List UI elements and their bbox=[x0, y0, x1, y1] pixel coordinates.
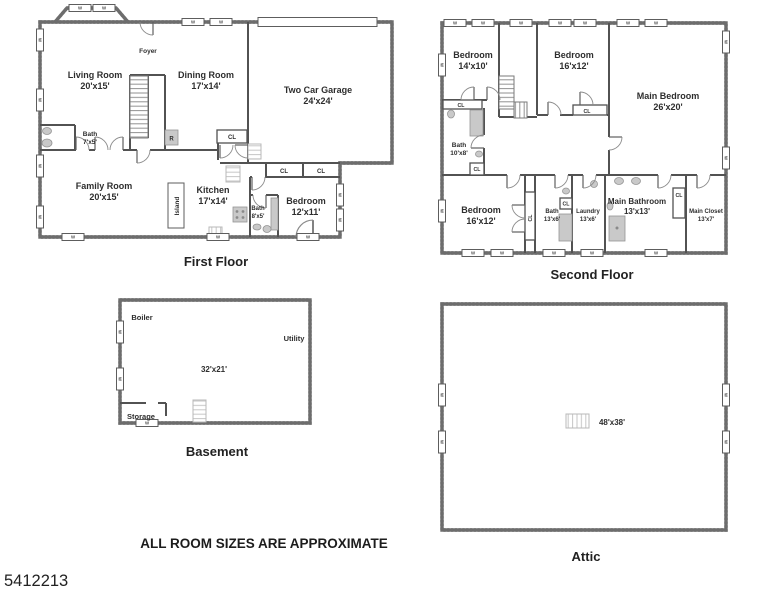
window-icon bbox=[645, 20, 667, 27]
room-dims-main-closet: 13'x7' bbox=[698, 217, 715, 223]
basement-title: Basement bbox=[186, 444, 249, 459]
window-icon bbox=[37, 155, 44, 177]
door-icon bbox=[555, 175, 568, 188]
tub-icon bbox=[559, 214, 572, 241]
door-icon bbox=[580, 92, 593, 105]
toilet-icon bbox=[448, 110, 455, 118]
room-label-bedroom1: Bedroom bbox=[453, 50, 493, 60]
stairs-icon bbox=[566, 414, 589, 428]
tub-icon bbox=[470, 110, 483, 136]
window-icon bbox=[69, 5, 91, 12]
room-dims-garage: 24'x24' bbox=[303, 96, 332, 106]
basement-plan: Boiler Utility 32'x21' Storage Basement bbox=[117, 300, 311, 459]
window-icon bbox=[439, 54, 446, 76]
window-icon bbox=[337, 184, 344, 206]
attic-title: Attic bbox=[572, 549, 601, 564]
window-icon bbox=[444, 20, 466, 27]
window-icon bbox=[723, 431, 730, 453]
window-icon bbox=[207, 234, 229, 241]
door-icon bbox=[609, 137, 622, 150]
room-dims-bath1: 10'x8' bbox=[450, 150, 468, 157]
window-icon bbox=[37, 206, 44, 228]
closet-label: CL bbox=[317, 169, 325, 175]
door-icon bbox=[658, 175, 671, 188]
toilet-icon bbox=[263, 226, 271, 233]
stairs-icon bbox=[193, 400, 206, 422]
garage-door-icon bbox=[258, 18, 377, 27]
window-icon bbox=[645, 250, 667, 257]
window-icon bbox=[210, 19, 232, 26]
door-icon bbox=[461, 87, 474, 100]
room-label-main-closet: Main Closet bbox=[689, 209, 723, 215]
room-label-living: Living Room bbox=[68, 70, 123, 80]
window-icon bbox=[439, 200, 446, 222]
stairs-icon bbox=[499, 76, 514, 109]
window-icon bbox=[337, 209, 344, 231]
room-dims-bedroom1: 14'x10' bbox=[458, 61, 487, 71]
closet-label: CL bbox=[280, 169, 288, 175]
stove-icon bbox=[233, 207, 247, 222]
room-label-laundry: Laundry bbox=[576, 209, 600, 215]
first-floor-plan: R Foyer Living Room 20'x15' Dining Room bbox=[37, 5, 393, 270]
window-icon bbox=[574, 20, 596, 27]
room-dims-basement: 32'x21' bbox=[201, 365, 227, 374]
room-label-foyer: Foyer bbox=[139, 48, 157, 55]
room-label-main-bedroom: Main Bedroom bbox=[637, 91, 700, 101]
window-icon bbox=[549, 20, 571, 27]
disclaimer-text: ALL ROOM SIZES ARE APPROXIMATE bbox=[140, 536, 388, 551]
first-floor-title: First Floor bbox=[184, 254, 248, 269]
second-floor-title: Second Floor bbox=[550, 267, 633, 282]
floor-plan-canvas: W R bbox=[0, 0, 768, 594]
door-icon bbox=[137, 150, 150, 163]
sink-icon bbox=[253, 224, 261, 230]
room-label-main-bathroom: Main Bathroom bbox=[608, 197, 666, 206]
sink-icon bbox=[43, 128, 52, 135]
window-icon bbox=[117, 368, 124, 390]
room-dims-laundry: 13'x6' bbox=[580, 217, 597, 223]
shower-icon bbox=[609, 216, 625, 241]
window-icon bbox=[439, 431, 446, 453]
attic-plan: 48'x38' Attic bbox=[439, 304, 730, 564]
window-icon bbox=[723, 384, 730, 406]
door-icon bbox=[697, 175, 710, 188]
room-label-bedroom3: Bedroom bbox=[461, 205, 501, 215]
sink-icon bbox=[476, 151, 483, 157]
room-label-bedroom2: Bedroom bbox=[554, 50, 594, 60]
shower-icon bbox=[271, 198, 278, 230]
room-dims-bath2: 8'x5' bbox=[252, 214, 265, 220]
stairs-icon bbox=[514, 102, 527, 118]
closet-label: CL bbox=[563, 202, 571, 208]
closet-label: CL bbox=[584, 109, 592, 115]
room-dims-family: 20'x15' bbox=[89, 192, 118, 202]
room-label-boiler: Boiler bbox=[131, 313, 152, 322]
window-icon bbox=[37, 29, 44, 51]
window-icon bbox=[510, 20, 532, 27]
window-icon bbox=[723, 31, 730, 53]
room-label-utility: Utility bbox=[284, 334, 306, 343]
room-dims-bedroom3: 16'x12' bbox=[466, 216, 495, 226]
stairs-icon bbox=[130, 76, 148, 138]
window-icon bbox=[491, 250, 513, 257]
sink-icon bbox=[615, 178, 624, 185]
second-floor-plan: Bedroom 14'x10' Bedroom 16'x12' Main Bed… bbox=[439, 20, 730, 283]
window-icon bbox=[581, 250, 603, 257]
room-label-bath1: Bath bbox=[452, 142, 466, 149]
room-dims-kitchen: 17'x14' bbox=[198, 196, 227, 206]
room-dims-living: 20'x15' bbox=[80, 81, 109, 91]
toilet-icon bbox=[42, 139, 52, 147]
room-dims-attic: 48'x38' bbox=[599, 418, 625, 427]
door-icon bbox=[507, 175, 520, 188]
listing-id: 5412213 bbox=[4, 572, 68, 590]
window-icon bbox=[93, 5, 115, 12]
window-icon bbox=[297, 234, 319, 241]
sink-icon bbox=[632, 178, 641, 185]
room-label-bath1: Bath bbox=[83, 131, 97, 138]
garage-steps-icon bbox=[248, 144, 261, 159]
closet-label: CL bbox=[458, 103, 466, 109]
door-icon bbox=[110, 137, 123, 150]
room-dims-main-bathroom: 13'x13' bbox=[624, 207, 650, 216]
room-dims-bath1: 7'x5' bbox=[83, 139, 97, 146]
door-icon bbox=[471, 135, 484, 148]
room-dims-bedroom: 12'x11' bbox=[292, 207, 321, 217]
closet-label: CL bbox=[528, 214, 534, 222]
closet-label: CL bbox=[228, 135, 236, 141]
window-icon bbox=[543, 250, 565, 257]
window-icon bbox=[182, 19, 204, 26]
refrigerator-icon: R bbox=[165, 130, 178, 145]
closet-label: CL bbox=[474, 167, 482, 173]
window-icon bbox=[37, 89, 44, 111]
window-icon bbox=[472, 20, 494, 27]
room-dims-dining: 17'x14' bbox=[191, 81, 220, 91]
toilet-icon bbox=[563, 188, 570, 194]
door-icon bbox=[140, 22, 153, 35]
window-icon bbox=[617, 20, 639, 27]
room-label-bath2: Bath bbox=[545, 209, 559, 215]
room-label-dining: Dining Room bbox=[178, 70, 234, 80]
room-label-storage: Storage bbox=[127, 412, 155, 421]
basement-stairs-icon bbox=[226, 166, 240, 182]
refrigerator-label: R bbox=[169, 137, 174, 143]
island-label: Island bbox=[174, 197, 181, 216]
door-icon bbox=[252, 177, 265, 190]
window-icon bbox=[439, 384, 446, 406]
room-label-garage: Two Car Garage bbox=[284, 85, 352, 95]
floor-plan-sheet: W R bbox=[0, 0, 768, 594]
room-dims-bath2: 13'x6' bbox=[544, 217, 561, 223]
room-label-kitchen: Kitchen bbox=[196, 185, 229, 195]
door-icon bbox=[512, 205, 525, 218]
window-icon bbox=[62, 234, 84, 241]
room-dims-main-bedroom: 26'x20' bbox=[653, 102, 682, 112]
window-icon bbox=[462, 250, 484, 257]
room-label-bedroom: Bedroom bbox=[286, 196, 326, 206]
room-label-family: Family Room bbox=[76, 181, 133, 191]
window-icon bbox=[723, 147, 730, 169]
door-icon bbox=[548, 102, 561, 115]
room-dims-bedroom2: 16'x12' bbox=[559, 61, 588, 71]
window-icon bbox=[117, 321, 124, 343]
closet-label: CL bbox=[676, 193, 684, 199]
door-icon bbox=[512, 219, 525, 232]
door-icon bbox=[235, 145, 248, 158]
door-icon bbox=[220, 145, 233, 158]
room-label-bath2: Bath bbox=[251, 206, 265, 212]
